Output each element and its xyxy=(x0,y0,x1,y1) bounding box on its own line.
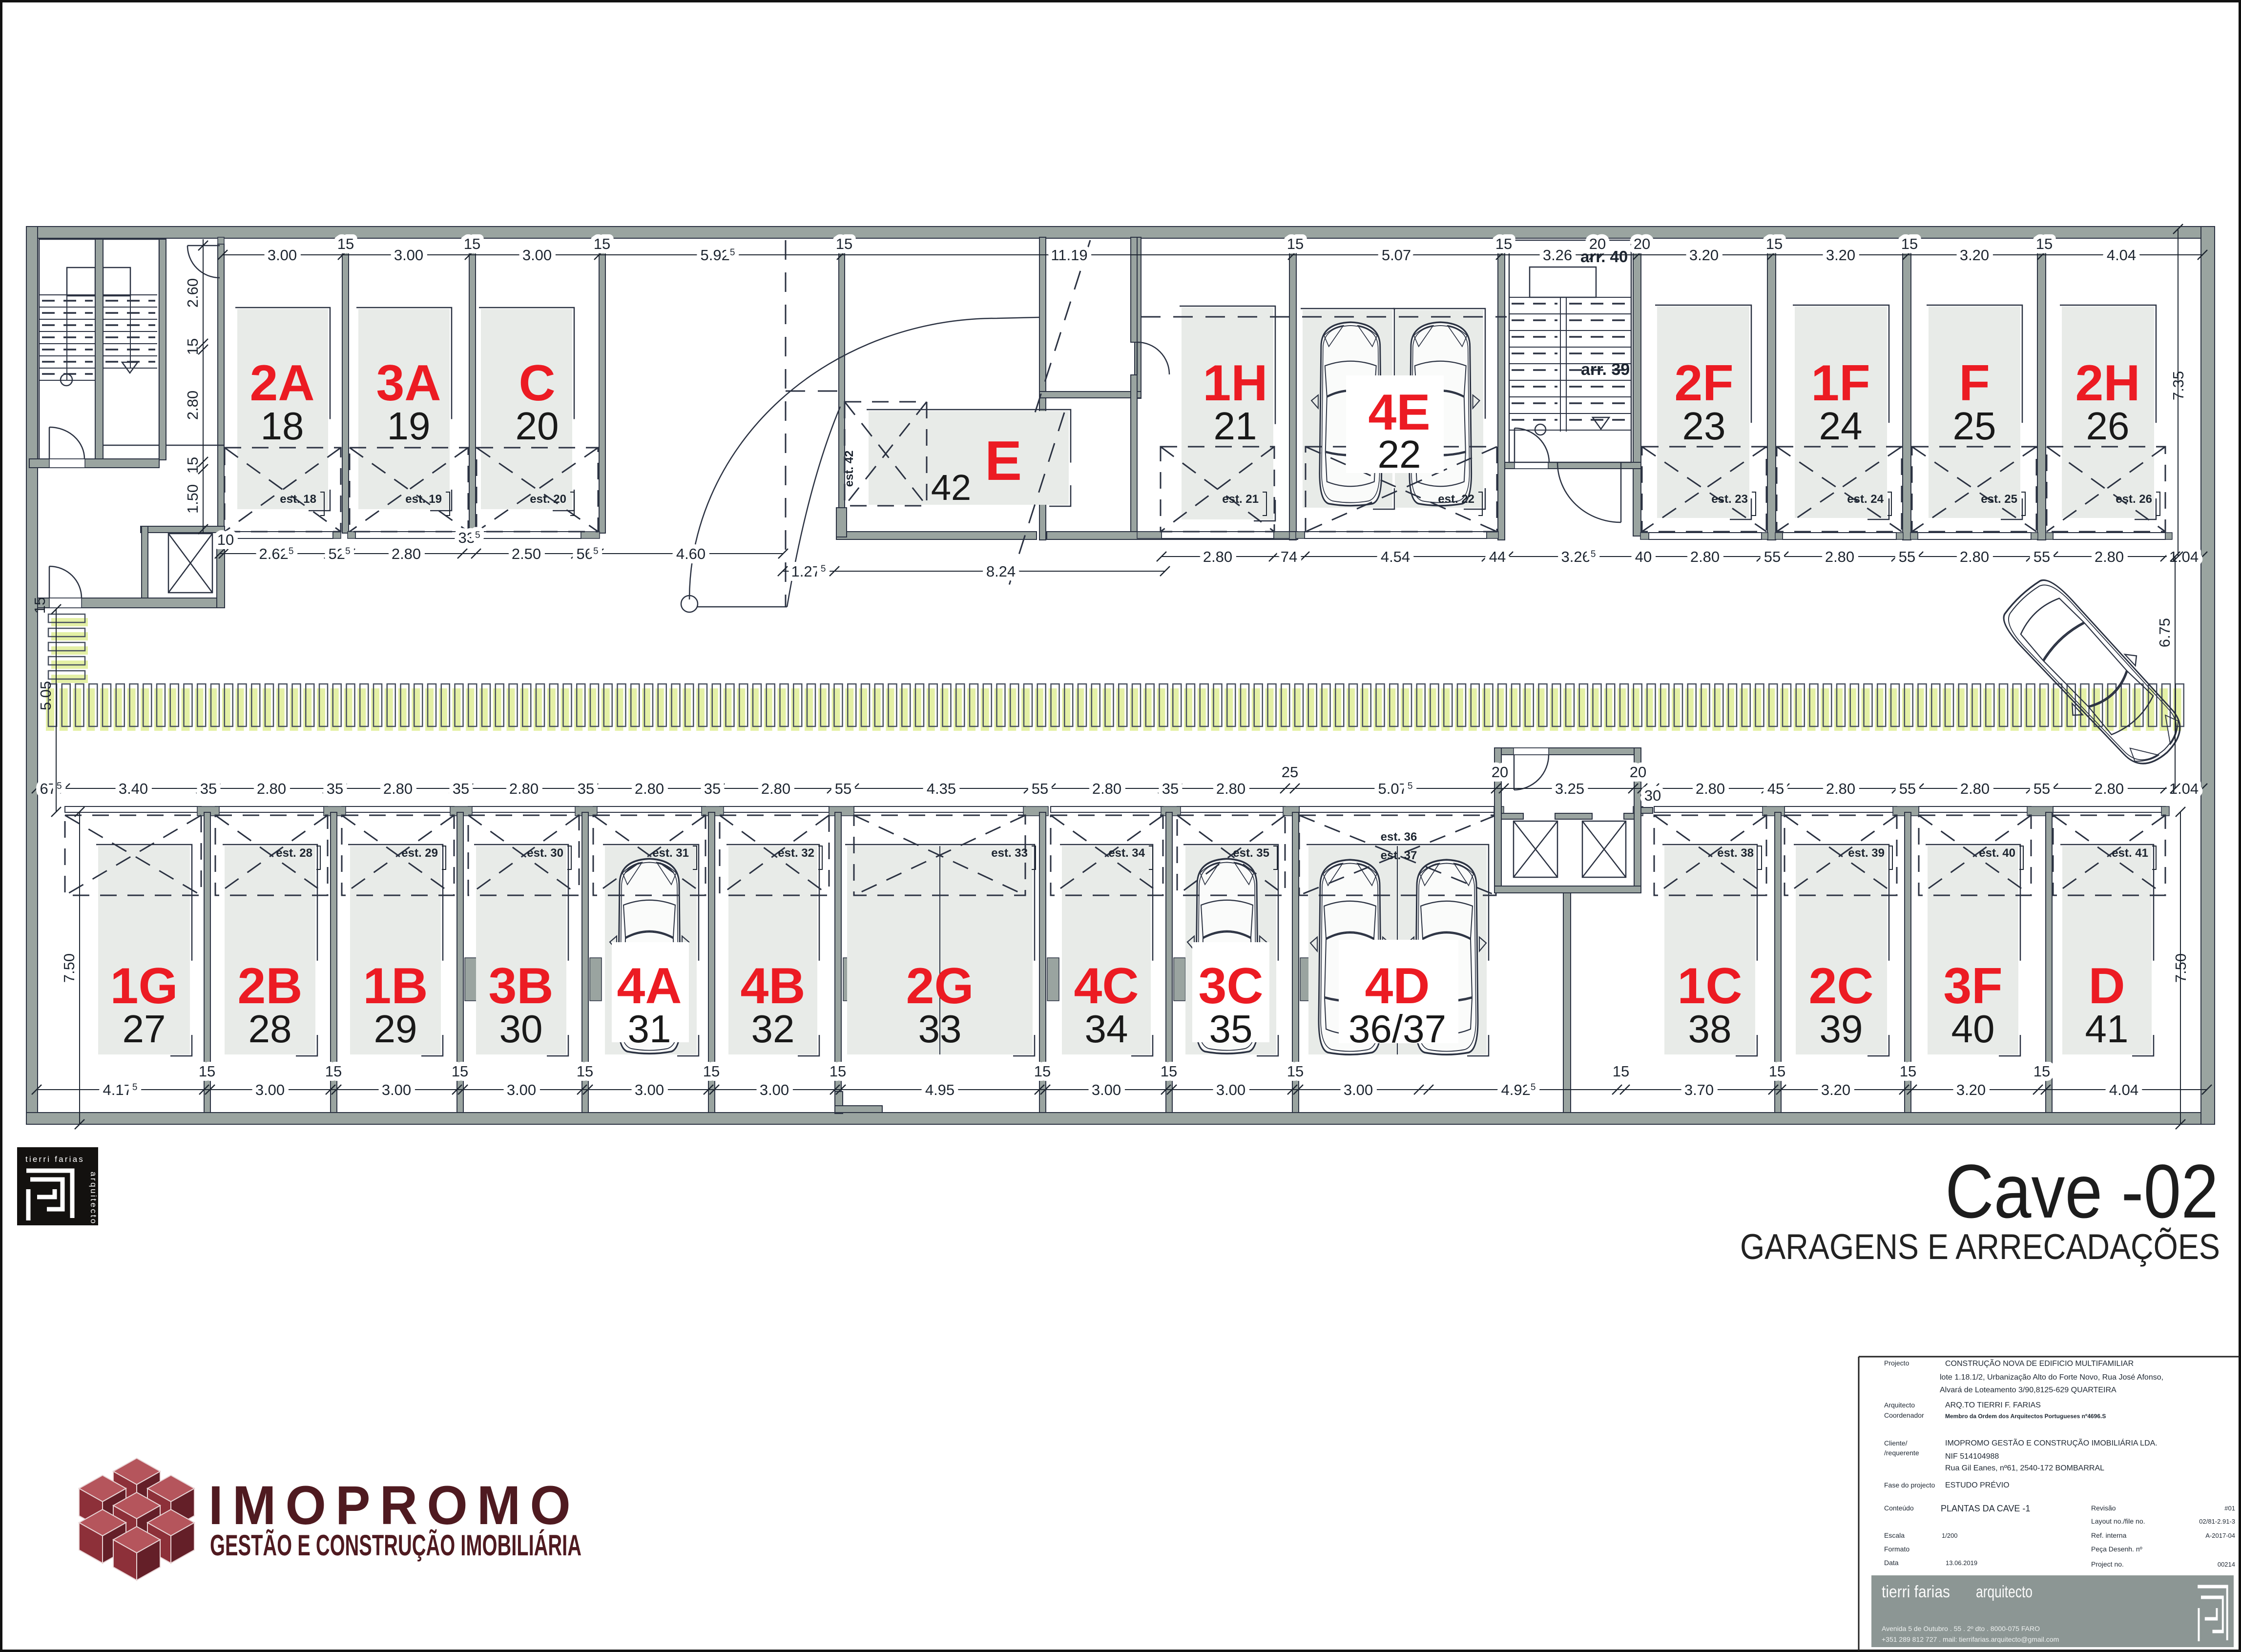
svg-text:20: 20 xyxy=(1634,235,1650,252)
svg-text:19: 19 xyxy=(387,404,431,448)
svg-text:00214: 00214 xyxy=(2218,1561,2235,1568)
svg-text:2.80: 2.80 xyxy=(1696,780,1725,797)
svg-text:4.175: 4.175 xyxy=(103,1081,138,1098)
svg-text:3F: 3F xyxy=(1943,958,2002,1014)
svg-text:est. 20: est. 20 xyxy=(530,493,566,506)
svg-text:est. 39: est. 39 xyxy=(1848,847,1885,860)
svg-text:est. 31: est. 31 xyxy=(652,847,689,860)
svg-text:3.20: 3.20 xyxy=(1826,247,1855,264)
svg-text:3A: 3A xyxy=(376,355,441,412)
svg-text:13.06.2019: 13.06.2019 xyxy=(1946,1559,1977,1567)
svg-text:2.80: 2.80 xyxy=(257,780,286,797)
svg-text:3.00: 3.00 xyxy=(1216,1081,1245,1098)
svg-text:15: 15 xyxy=(337,235,354,252)
svg-text:est. 36: est. 36 xyxy=(1381,830,1417,844)
svg-text:30: 30 xyxy=(499,1007,543,1051)
svg-text:Revisão: Revisão xyxy=(2091,1504,2116,1512)
svg-text:35: 35 xyxy=(578,780,594,797)
svg-text:24: 24 xyxy=(1819,404,1863,448)
svg-text:20: 20 xyxy=(1630,764,1646,781)
svg-text:35: 35 xyxy=(704,780,721,797)
svg-text:Cliente/: Cliente/ xyxy=(1884,1439,1908,1447)
svg-text:Peça Desenh. nº: Peça Desenh. nº xyxy=(2091,1545,2142,1553)
svg-text:35: 35 xyxy=(327,780,343,797)
svg-text:8.24: 8.24 xyxy=(986,563,1016,580)
svg-text:2.80: 2.80 xyxy=(761,780,790,797)
svg-text:15: 15 xyxy=(2033,1063,2050,1080)
svg-text:5.925: 5.925 xyxy=(701,247,735,264)
svg-text:2.80: 2.80 xyxy=(1825,548,1854,565)
svg-text:21: 21 xyxy=(1214,404,1257,448)
svg-text:NIF 514104988: NIF 514104988 xyxy=(1945,1452,1999,1461)
svg-text:est. 38: est. 38 xyxy=(1717,847,1754,860)
svg-text:est. 41: est. 41 xyxy=(2112,847,2148,860)
svg-text:2.625: 2.625 xyxy=(259,545,294,562)
svg-text:2.80: 2.80 xyxy=(1216,780,1245,797)
svg-text:2.80: 2.80 xyxy=(184,391,201,420)
svg-text:Ref. interna: Ref. interna xyxy=(2091,1531,2127,1539)
svg-text:Alvará de Loteamento 3/90,8125: Alvará de Loteamento 3/90,8125-629 QUART… xyxy=(1940,1386,2116,1394)
svg-text:6.75: 6.75 xyxy=(2156,618,2173,647)
svg-text:32: 32 xyxy=(751,1007,795,1051)
svg-text:3.70: 3.70 xyxy=(1684,1081,1714,1098)
svg-text:15: 15 xyxy=(1769,1063,1785,1080)
svg-text:15: 15 xyxy=(1495,235,1512,252)
svg-text:74: 74 xyxy=(1281,548,1297,565)
svg-text:Coordenador: Coordenador xyxy=(1884,1411,1924,1419)
svg-text:4.925: 4.925 xyxy=(1501,1081,1536,1098)
svg-text:Arquitecto: Arquitecto xyxy=(1884,1401,1915,1409)
svg-text:2.80: 2.80 xyxy=(392,545,421,562)
svg-text:2.80: 2.80 xyxy=(1690,548,1720,565)
svg-text:tierri farias: tierri farias xyxy=(25,1155,84,1164)
svg-text:2.60: 2.60 xyxy=(184,278,201,308)
svg-text:15: 15 xyxy=(1766,235,1783,252)
svg-text:3.25: 3.25 xyxy=(1555,780,1584,797)
svg-text:40: 40 xyxy=(1635,548,1652,565)
svg-text:55: 55 xyxy=(1899,548,1915,565)
svg-text:36/37: 36/37 xyxy=(1349,1007,1446,1051)
svg-text:2.80: 2.80 xyxy=(383,780,413,797)
svg-text:2.80: 2.80 xyxy=(1960,548,1989,565)
svg-text:1H: 1H xyxy=(1203,355,1268,412)
svg-text:15: 15 xyxy=(830,1063,846,1080)
svg-text:23: 23 xyxy=(1682,404,1726,448)
svg-text:25: 25 xyxy=(1282,764,1298,781)
svg-text:5.075: 5.075 xyxy=(1378,780,1413,797)
svg-text:#01: #01 xyxy=(2224,1505,2235,1512)
svg-text:4.54: 4.54 xyxy=(1381,548,1410,565)
svg-text:arr. 39: arr. 39 xyxy=(1581,360,1630,379)
svg-text:2H: 2H xyxy=(2075,355,2140,412)
svg-text:4A: 4A xyxy=(617,958,682,1014)
svg-text:25: 25 xyxy=(1953,404,1996,448)
svg-text:33: 33 xyxy=(918,1007,962,1051)
svg-text:15: 15 xyxy=(2036,235,2053,252)
svg-text:1F: 1F xyxy=(1811,355,1870,412)
svg-text:55: 55 xyxy=(1764,548,1781,565)
svg-text:15: 15 xyxy=(836,235,852,252)
svg-text:3.20: 3.20 xyxy=(1689,247,1719,264)
svg-text:est. 30: est. 30 xyxy=(527,847,563,860)
svg-text:GESTÃO E CONSTRUÇÃO IMOBILIÁRI: GESTÃO E CONSTRUÇÃO IMOBILIÁRIA xyxy=(210,1529,581,1562)
svg-text:4.04: 4.04 xyxy=(2107,247,2136,264)
svg-text:3.00: 3.00 xyxy=(1092,1081,1121,1098)
svg-text:15: 15 xyxy=(1900,1063,1916,1080)
svg-text:15: 15 xyxy=(577,1063,593,1080)
svg-text:1C: 1C xyxy=(1678,958,1743,1014)
svg-text:ESTUDO PRÉVIO: ESTUDO PRÉVIO xyxy=(1945,1480,2010,1489)
svg-text:5.05: 5.05 xyxy=(37,681,54,710)
svg-text:2.80: 2.80 xyxy=(2095,548,2124,565)
svg-text:15: 15 xyxy=(1287,235,1304,252)
svg-text:Projecto: Projecto xyxy=(1884,1359,1909,1367)
svg-text:29: 29 xyxy=(374,1007,417,1051)
svg-text:tierri farias: tierri farias xyxy=(1882,1583,1950,1601)
svg-text:est. 25: est. 25 xyxy=(1981,493,2017,506)
svg-text:15: 15 xyxy=(464,235,480,252)
svg-text:7.50: 7.50 xyxy=(2172,953,2189,983)
svg-text:2.80: 2.80 xyxy=(1826,780,1855,797)
svg-text:3.00: 3.00 xyxy=(760,1081,789,1098)
svg-text:arquitecto: arquitecto xyxy=(1976,1583,2033,1601)
svg-text:44: 44 xyxy=(1489,548,1506,565)
svg-text:est. 19: est. 19 xyxy=(405,493,442,506)
svg-text:7.50: 7.50 xyxy=(61,953,78,983)
svg-text:30: 30 xyxy=(1644,787,1661,804)
svg-text:45: 45 xyxy=(1767,780,1784,797)
svg-text:2F: 2F xyxy=(1674,355,1733,412)
svg-text:11.19: 11.19 xyxy=(1051,247,1087,264)
svg-text:15: 15 xyxy=(31,597,48,614)
svg-text:Data: Data xyxy=(1884,1559,1899,1567)
svg-text:2C: 2C xyxy=(1809,958,1874,1014)
svg-text:3.00: 3.00 xyxy=(1344,1081,1373,1098)
svg-text:est. 22: est. 22 xyxy=(1438,493,1474,506)
svg-text:F: F xyxy=(1959,355,1990,412)
svg-text:1.275: 1.275 xyxy=(791,563,826,580)
svg-text:35: 35 xyxy=(1162,780,1179,797)
svg-text:4B: 4B xyxy=(741,958,806,1014)
svg-text:2.80: 2.80 xyxy=(509,780,539,797)
svg-text:est. 33: est. 33 xyxy=(991,847,1028,860)
svg-text:3.265: 3.265 xyxy=(1561,548,1596,565)
svg-text:Escala: Escala xyxy=(1884,1531,1905,1539)
svg-text:15: 15 xyxy=(1034,1063,1051,1080)
svg-text:39: 39 xyxy=(1820,1007,1863,1051)
svg-text:55: 55 xyxy=(835,780,851,797)
svg-text:Rua Gil Eanes, nº61, 2540-172: Rua Gil Eanes, nº61, 2540-172 BOMBARRAL xyxy=(1945,1464,2104,1472)
svg-text:3C: 3C xyxy=(1199,958,1264,1014)
svg-text:IMOPROMO GESTÃO E CONSTRUÇÃO I: IMOPROMO GESTÃO E CONSTRUÇÃO IMOBILIÁRIA… xyxy=(1945,1438,2158,1447)
svg-text:est. 40: est. 40 xyxy=(1979,847,2015,860)
svg-text:est. 28: est. 28 xyxy=(276,847,312,860)
svg-text:5.07: 5.07 xyxy=(1382,247,1411,264)
svg-text:26: 26 xyxy=(2086,404,2130,448)
svg-text:CONSTRUÇÃO NOVA DE EDIFICIO MU: CONSTRUÇÃO NOVA DE EDIFICIO MULTIFAMILIA… xyxy=(1945,1358,2134,1368)
svg-text:10: 10 xyxy=(217,531,234,548)
svg-text:27: 27 xyxy=(123,1007,166,1051)
svg-text:3.20: 3.20 xyxy=(1960,247,1989,264)
svg-text:2A: 2A xyxy=(250,355,315,412)
svg-text:7.35: 7.35 xyxy=(2170,371,2187,400)
svg-text:35: 35 xyxy=(453,780,469,797)
svg-text:41: 41 xyxy=(2085,1007,2129,1051)
svg-text:15: 15 xyxy=(452,1063,468,1080)
svg-text:/requerente: /requerente xyxy=(1884,1449,1919,1457)
svg-text:4.60: 4.60 xyxy=(676,545,705,562)
svg-text:1.04: 1.04 xyxy=(2169,780,2199,797)
svg-text:38: 38 xyxy=(1688,1007,1732,1051)
svg-text:3.00: 3.00 xyxy=(394,247,423,264)
svg-text:2.50: 2.50 xyxy=(512,545,541,562)
svg-text:2G: 2G xyxy=(906,958,974,1014)
svg-text:42: 42 xyxy=(931,467,971,508)
svg-text:40: 40 xyxy=(1951,1007,1995,1051)
svg-text:15: 15 xyxy=(594,235,610,252)
svg-text:3.00: 3.00 xyxy=(522,247,552,264)
svg-text:est. 35: est. 35 xyxy=(1233,847,1269,860)
svg-text:55: 55 xyxy=(2033,780,2050,797)
svg-text:2B: 2B xyxy=(238,958,303,1014)
svg-text:34: 34 xyxy=(1085,1007,1128,1051)
svg-text:4C: 4C xyxy=(1074,958,1139,1014)
svg-text:15: 15 xyxy=(184,338,201,355)
svg-text:est. 42: est. 42 xyxy=(843,451,856,487)
svg-text:3.00: 3.00 xyxy=(255,1081,285,1098)
svg-text:ARQ.TO TIERRI F. FARIAS: ARQ.TO TIERRI F. FARIAS xyxy=(1945,1401,2041,1409)
svg-text:4.95: 4.95 xyxy=(925,1081,954,1098)
svg-text:C: C xyxy=(519,355,555,412)
svg-text:4.04: 4.04 xyxy=(2109,1081,2138,1098)
svg-text:A-2017-04: A-2017-04 xyxy=(2205,1532,2235,1539)
svg-text:2.80: 2.80 xyxy=(1092,780,1121,797)
svg-text:31: 31 xyxy=(628,1007,671,1051)
svg-text:Formato: Formato xyxy=(1884,1545,1909,1553)
svg-text:3.00: 3.00 xyxy=(635,1081,664,1098)
svg-text:55: 55 xyxy=(1899,780,1916,797)
svg-text:02/81-2.91-3: 02/81-2.91-3 xyxy=(2199,1518,2235,1525)
svg-text:Project no.: Project no. xyxy=(2091,1560,2124,1568)
svg-text:est. 23: est. 23 xyxy=(1711,493,1748,506)
svg-text:D: D xyxy=(2088,958,2125,1014)
svg-text:est. 32: est. 32 xyxy=(778,847,814,860)
svg-text:35: 35 xyxy=(1209,1007,1253,1051)
svg-text:Conteúdo: Conteúdo xyxy=(1884,1504,1914,1512)
svg-text:55: 55 xyxy=(2033,548,2050,565)
svg-text:est. 37: est. 37 xyxy=(1381,849,1417,862)
svg-text:1.04: 1.04 xyxy=(2169,548,2199,565)
svg-text:4D: 4D xyxy=(1365,958,1430,1014)
svg-text:3.20: 3.20 xyxy=(1821,1081,1850,1098)
svg-text:2.80: 2.80 xyxy=(635,780,664,797)
svg-text:1.50: 1.50 xyxy=(184,484,201,514)
svg-text:20: 20 xyxy=(1492,764,1508,781)
svg-text:15: 15 xyxy=(325,1063,342,1080)
svg-text:3.00: 3.00 xyxy=(268,247,297,264)
svg-text:3B: 3B xyxy=(489,958,554,1014)
svg-text:Cave -02: Cave -02 xyxy=(1945,1149,2219,1234)
svg-text:3.40: 3.40 xyxy=(119,780,148,797)
svg-text:3.00: 3.00 xyxy=(507,1081,536,1098)
svg-text:est. 21: est. 21 xyxy=(1222,493,1259,506)
svg-text:4.35: 4.35 xyxy=(927,780,956,797)
svg-text:est. 18: est. 18 xyxy=(280,493,316,506)
svg-text:28: 28 xyxy=(249,1007,292,1051)
svg-text:Layout no./file no.: Layout no./file no. xyxy=(2091,1517,2145,1525)
svg-text:15: 15 xyxy=(1901,235,1918,252)
svg-text:35: 35 xyxy=(200,780,217,797)
svg-text:est. 26: est. 26 xyxy=(2116,493,2152,506)
svg-text:20: 20 xyxy=(1589,235,1606,252)
svg-text:15: 15 xyxy=(199,1063,215,1080)
svg-text:Membro da Ordem dos Arquitecto: Membro da Ordem dos Arquitectos Portugue… xyxy=(1945,1413,2106,1420)
svg-text:E: E xyxy=(985,430,1022,492)
svg-text:PLANTAS DA CAVE -1: PLANTAS DA CAVE -1 xyxy=(1941,1504,2030,1513)
svg-text:+351 289 812 727 . mail: tier: +351 289 812 727 . mail: tierrifarias.ar… xyxy=(1882,1635,2059,1643)
svg-text:2.80: 2.80 xyxy=(1960,780,1990,797)
svg-text:3.00: 3.00 xyxy=(382,1081,411,1098)
svg-text:GARAGENS E ARRECADAÇÕES: GARAGENS E ARRECADAÇÕES xyxy=(1740,1227,2220,1267)
svg-text:18: 18 xyxy=(261,404,304,448)
svg-text:22: 22 xyxy=(1378,433,1421,476)
svg-text:Fase do projecto: Fase do projecto xyxy=(1884,1481,1935,1489)
svg-text:15: 15 xyxy=(1613,1063,1629,1080)
svg-text:lote 1.18.1/2, Urbanização Alt: lote 1.18.1/2, Urbanização Alto do Forte… xyxy=(1940,1373,2163,1382)
svg-text:3.26: 3.26 xyxy=(1543,247,1572,264)
svg-text:3.20: 3.20 xyxy=(1956,1081,1986,1098)
svg-text:1B: 1B xyxy=(363,958,428,1014)
svg-text:2.80: 2.80 xyxy=(1203,548,1232,565)
svg-text:est. 29: est. 29 xyxy=(401,847,438,860)
svg-text:55: 55 xyxy=(1032,780,1048,797)
svg-text:15: 15 xyxy=(1161,1063,1177,1080)
svg-text:20: 20 xyxy=(516,404,559,448)
svg-text:1/200: 1/200 xyxy=(1942,1532,1958,1539)
svg-text:15: 15 xyxy=(1287,1063,1304,1080)
svg-text:est. 24: est. 24 xyxy=(1847,493,1884,506)
svg-text:2.80: 2.80 xyxy=(2095,780,2124,797)
svg-text:15: 15 xyxy=(184,457,201,474)
svg-text:arquitectos: arquitectos xyxy=(89,1172,98,1231)
svg-text:est. 34: est. 34 xyxy=(1108,847,1145,860)
svg-text:IMOPROMO: IMOPROMO xyxy=(208,1475,580,1536)
svg-text:15: 15 xyxy=(703,1063,720,1080)
svg-text:Avenida 5 de Outubro . 55 . 2º: Avenida 5 de Outubro . 55 . 2º dto . 800… xyxy=(1882,1625,2040,1632)
svg-text:1G: 1G xyxy=(110,958,178,1014)
